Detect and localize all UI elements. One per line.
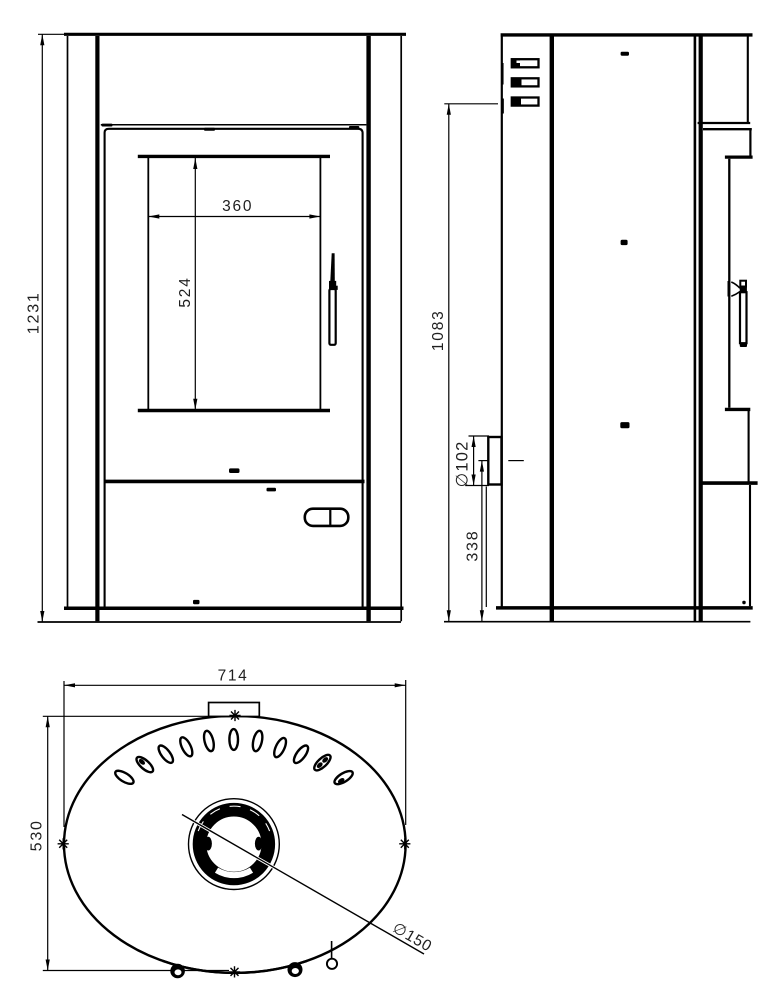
svg-text:714: 714 xyxy=(218,668,249,685)
svg-text:∅102: ∅102 xyxy=(453,441,471,488)
svg-text:360: 360 xyxy=(222,198,253,215)
svg-text:338: 338 xyxy=(465,530,482,562)
svg-text:524: 524 xyxy=(177,276,194,307)
svg-text:1083: 1083 xyxy=(430,309,447,351)
svg-text:1231: 1231 xyxy=(25,291,42,334)
svg-text:530: 530 xyxy=(29,819,46,851)
